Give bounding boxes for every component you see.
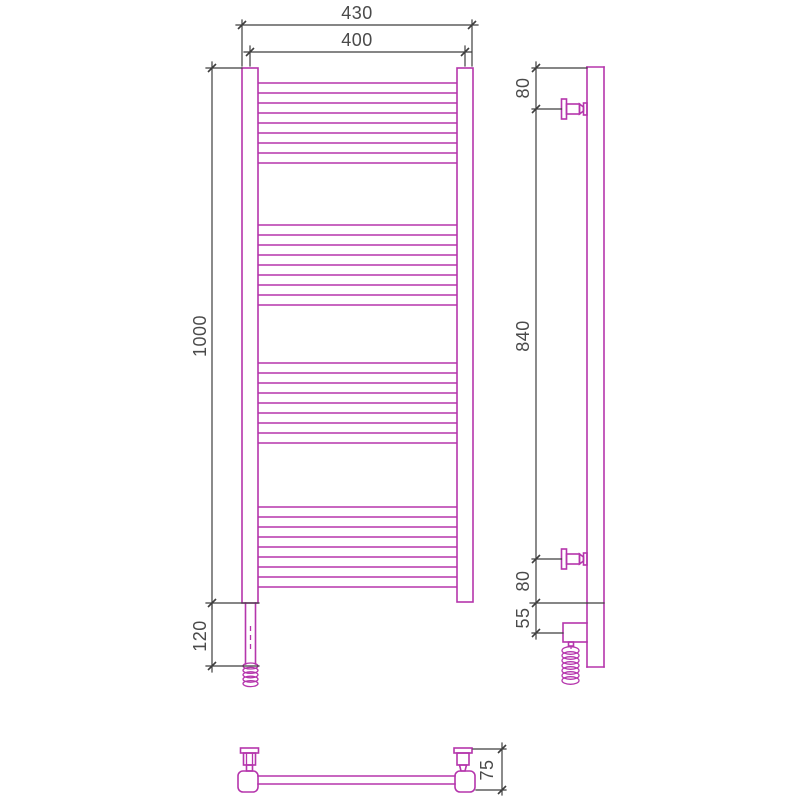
dim-label-840: 840 xyxy=(513,320,533,352)
right-post xyxy=(457,68,473,602)
left-end-cap xyxy=(238,771,258,792)
cable-coil-ring xyxy=(243,681,258,687)
power-cable-coil-side xyxy=(562,646,579,684)
dim-side-chain: 80 840 80 55 xyxy=(513,62,604,639)
dim-label-80-bottom: 80 xyxy=(513,570,533,591)
bottom-view: 75 xyxy=(238,743,506,795)
right-end-cap xyxy=(455,771,475,792)
dim-label-1000: 1000 xyxy=(190,315,210,357)
dim-label-80-top: 80 xyxy=(513,77,533,98)
element-housing xyxy=(563,623,587,642)
towel-bars xyxy=(259,83,457,587)
dim-height: 1000 xyxy=(190,62,242,609)
dim-label-120: 120 xyxy=(190,620,210,652)
dim-label-55: 55 xyxy=(513,607,533,628)
wall-bracket-bottom xyxy=(562,549,588,569)
left-post xyxy=(242,68,258,603)
dim-label-430: 430 xyxy=(341,3,373,23)
dim-label-75: 75 xyxy=(477,759,497,780)
bottom-bracket-right xyxy=(454,748,472,771)
technical-drawing: 430 400 1000 120 xyxy=(0,0,800,800)
wall-bracket-top xyxy=(562,99,588,119)
dim-axis-width: 400 xyxy=(244,30,471,66)
front-view: 430 400 1000 120 xyxy=(190,3,478,687)
cable-coil-ring xyxy=(562,677,579,685)
cable-gland xyxy=(569,642,574,646)
dim-element-extension: 120 xyxy=(190,603,259,672)
dim-wall-distance: 75 xyxy=(473,743,506,795)
dim-label-400: 400 xyxy=(341,30,373,50)
bottom-bracket-left xyxy=(241,748,259,771)
drawing-page: 430 400 1000 120 xyxy=(0,0,800,800)
side-view: 80 840 80 55 xyxy=(513,62,604,684)
